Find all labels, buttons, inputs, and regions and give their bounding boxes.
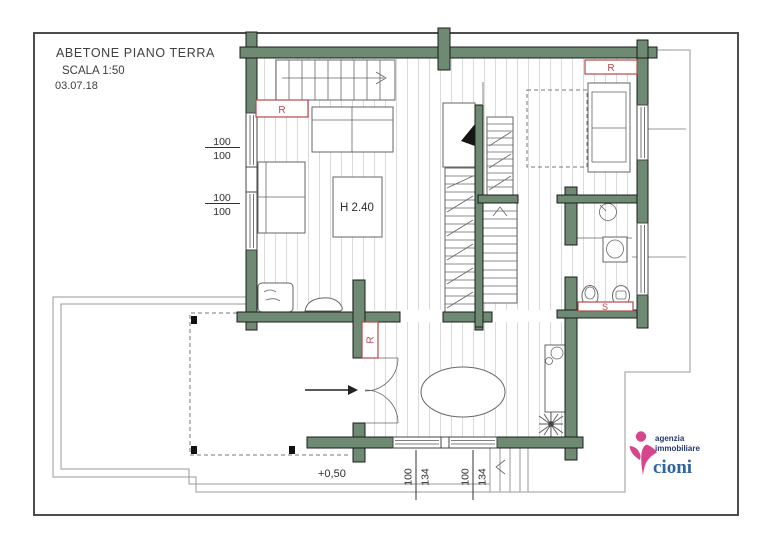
porch-post: [191, 446, 197, 454]
floor-plan-canvas: R R R S 100 100 100 100 100 134 100 134 …: [0, 0, 768, 543]
room-height-label: H 2.40: [340, 202, 374, 214]
radiator-bedroom: R: [585, 60, 637, 74]
exterior-steps: [490, 448, 528, 492]
radiator-label: R: [366, 336, 377, 343]
dim-value: 100: [403, 468, 415, 486]
sofa-top: [312, 107, 393, 152]
logo-line1: agenzia: [655, 434, 685, 443]
washbasin: [603, 237, 627, 262]
oval-dining-table: [421, 367, 505, 417]
cushion: [258, 283, 293, 312]
radiator-label: R: [607, 63, 614, 74]
porch-post: [289, 446, 295, 454]
window-left-1: [246, 113, 257, 167]
window-bathroom: [637, 223, 648, 295]
dim-value: 134: [477, 468, 489, 486]
radiator-label: R: [278, 105, 285, 116]
boiler-box: S: [578, 302, 633, 312]
window-mullion: [441, 437, 449, 448]
window-bottom-1: [393, 437, 441, 448]
logo-brand: cioni: [653, 457, 692, 478]
staircase-upper-flight: [276, 60, 395, 100]
dim-value: 100: [213, 192, 231, 204]
dim-value: 100: [460, 468, 472, 486]
window-frame-piece: [246, 167, 257, 192]
window-left-2: [246, 192, 257, 250]
radiator-entry: R: [362, 322, 378, 358]
window-bottom-2: [449, 437, 497, 448]
project-title: ABETONE PIANO TERRA: [56, 46, 215, 60]
dim-value: 100: [213, 206, 231, 218]
sofa-left: [258, 162, 305, 233]
logo-line2: immobiliare: [655, 444, 700, 453]
dim-value: 100: [213, 136, 231, 148]
floor-level-label: +0,50: [318, 468, 346, 480]
porch-post: [191, 316, 197, 324]
radiator-living: R: [256, 100, 308, 117]
bed: [588, 83, 630, 172]
drawing-sheet: R R R S 100 100 100 100 100 134 100 134 …: [0, 0, 768, 543]
dim-value: 100: [213, 150, 231, 162]
window-bedroom: [637, 105, 648, 160]
scale-label: SCALA 1:50: [62, 65, 125, 77]
dim-value: 134: [420, 468, 432, 486]
boiler-label: S: [602, 302, 608, 312]
date-label: 03.07.18: [55, 80, 98, 92]
